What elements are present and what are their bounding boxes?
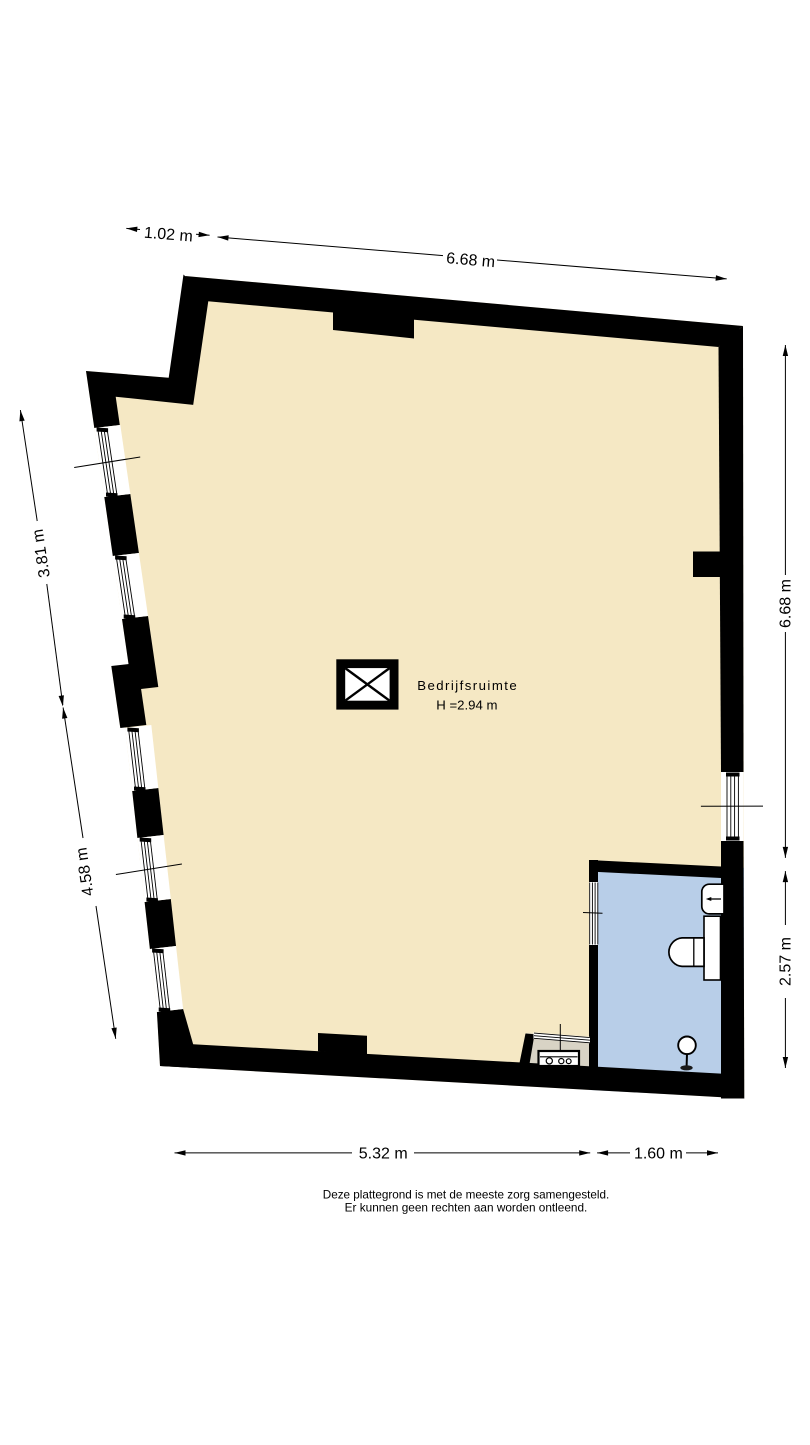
svg-text:Bedrijfsruimte: Bedrijfsruimte (417, 678, 518, 693)
svg-text:H =2.94 m: H =2.94 m (436, 698, 497, 713)
svg-text:1.60 m: 1.60 m (634, 1145, 683, 1162)
svg-text:6.68 m: 6.68 m (777, 579, 794, 628)
svg-text:2.57 m: 2.57 m (777, 937, 794, 986)
svg-text:Er kunnen geen rechten aan wor: Er kunnen geen rechten aan worden ontlee… (345, 1201, 588, 1215)
svg-text:Deze plattegrond is met de mee: Deze plattegrond is met de meeste zorg s… (323, 1188, 610, 1201)
svg-text:5.32 m: 5.32 m (359, 1145, 408, 1162)
